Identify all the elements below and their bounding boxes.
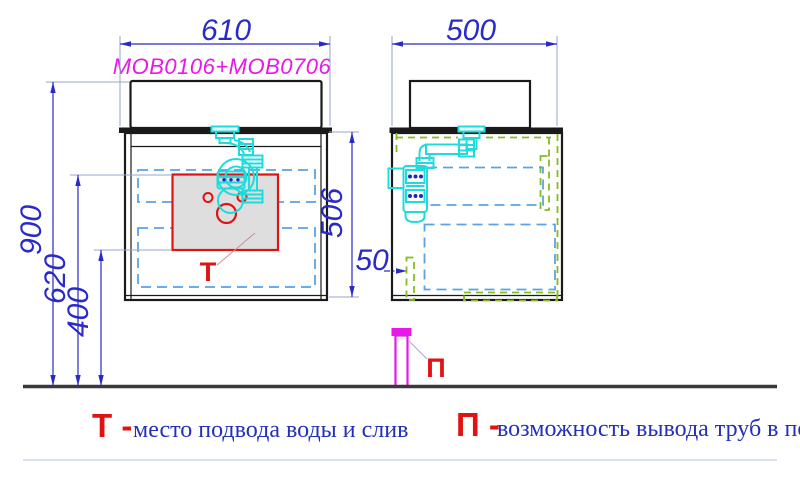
t-marker-label: Т: [200, 257, 217, 287]
drawing-page: Т: [0, 0, 800, 486]
legend-t-marker: Т -: [92, 407, 132, 444]
dim-text-900: 900: [15, 205, 48, 255]
model-label: MOB0106+MOB0706: [113, 54, 332, 79]
side-view: [389, 81, 564, 301]
dim-text-400: 400: [62, 287, 95, 337]
front-basin: [131, 81, 322, 128]
dim-text-506: 506: [316, 188, 349, 238]
technical-drawing: Т: [0, 0, 800, 486]
legend-p-text: возможность вывода труб в пол: [497, 416, 800, 442]
legend: Т - место подвода воды и слив П - возмож…: [23, 406, 800, 460]
front-view: Т: [119, 81, 332, 300]
dim-text-500: 500: [446, 14, 496, 47]
front-valve-dots: [222, 178, 239, 181]
side-basin: [410, 81, 530, 128]
dim-text-50: 50: [355, 244, 389, 277]
legend-p-marker: П -: [456, 406, 500, 443]
p-leader-line: [409, 341, 427, 359]
floor-pipe: П: [392, 329, 446, 387]
p-marker-label: П: [426, 353, 445, 383]
legend-t-text: место подвода воды и слив: [133, 417, 408, 443]
floor-pipe-body: [396, 336, 408, 387]
dim-text-610: 610: [201, 14, 251, 47]
